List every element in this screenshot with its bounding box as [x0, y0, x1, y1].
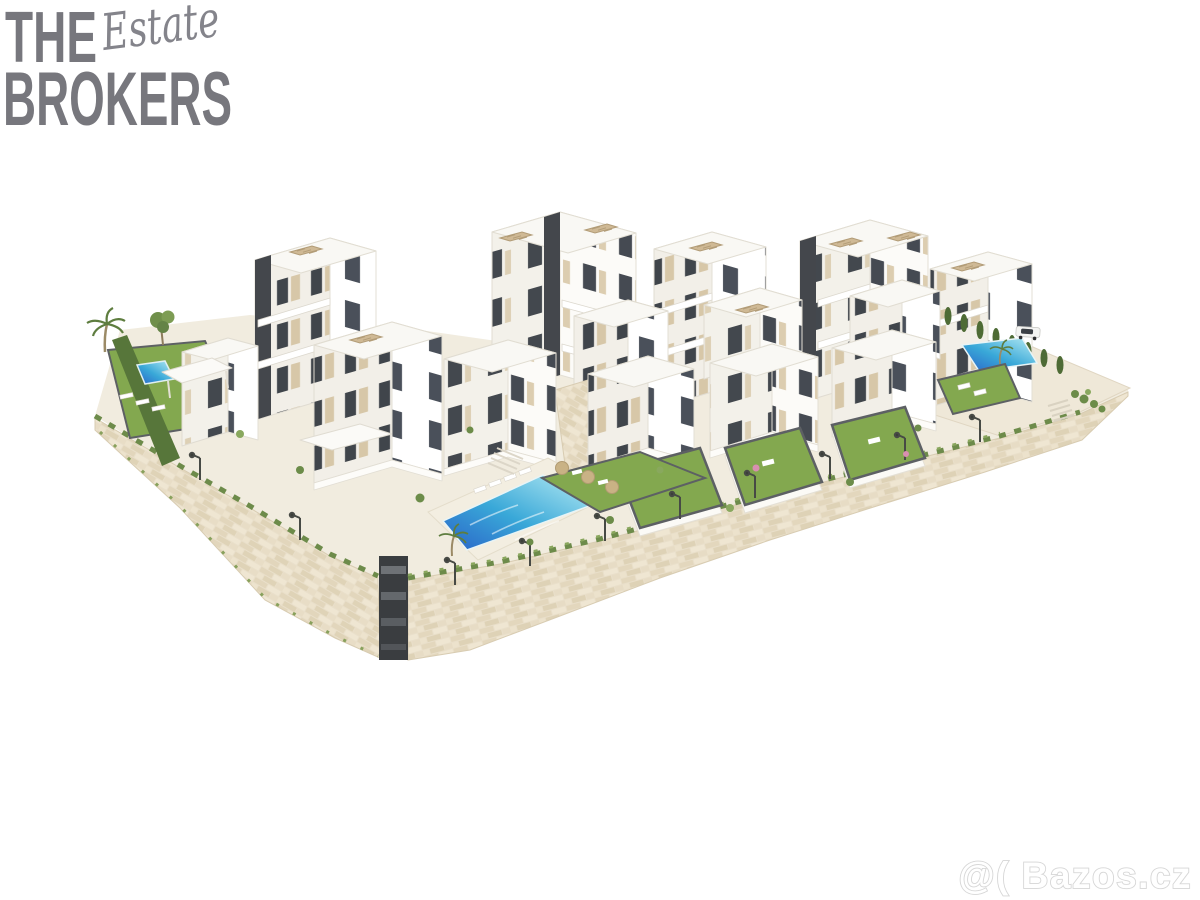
brand-logo: THE Estate BROKERS	[3, 0, 232, 142]
development-render: THE Estate BROKERS	[0, 0, 1200, 900]
building-front-1	[300, 322, 442, 490]
flower-shrub	[753, 465, 760, 472]
wall-stair-core	[379, 556, 408, 660]
logo-brokers: BROKERS	[3, 57, 232, 142]
flower-shrub	[903, 451, 909, 457]
logo-estate-script: Estate	[98, 0, 223, 62]
watermark: @( Bazos.cz	[958, 855, 1192, 896]
listing-image: THE Estate BROKERS	[0, 0, 1200, 900]
